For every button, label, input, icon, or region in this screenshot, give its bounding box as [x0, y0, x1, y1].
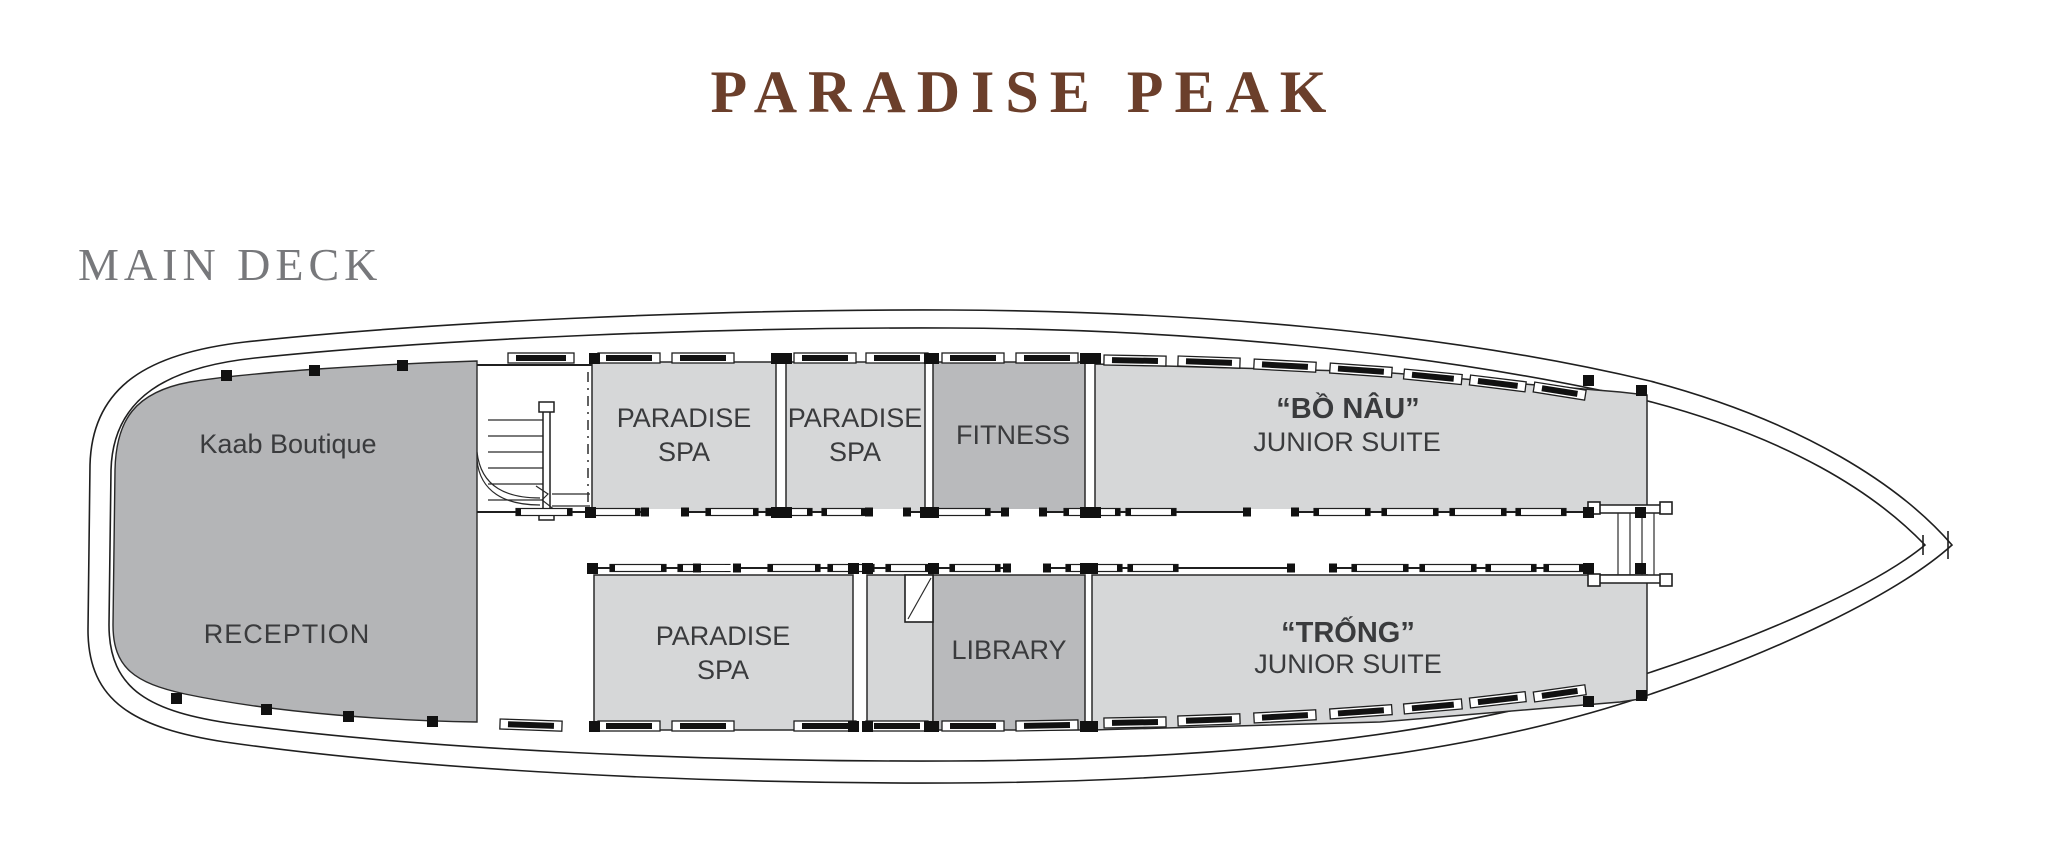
wall-junction-mark	[1583, 375, 1594, 386]
window-tick	[1471, 565, 1476, 572]
wall-junction-mark	[1583, 563, 1594, 574]
wall-junction-mark	[1583, 696, 1594, 707]
wall-junction-mark	[589, 721, 600, 732]
corridor-window-icon	[934, 509, 990, 516]
window-tick	[567, 509, 572, 516]
window-icon	[500, 719, 562, 731]
window-icon	[794, 353, 856, 363]
window-icon	[672, 353, 734, 363]
label-spa2-line2: SPA	[829, 437, 881, 467]
window-icon	[1016, 353, 1078, 363]
corridor-window-icon	[1516, 509, 1566, 516]
door-opening	[648, 509, 682, 515]
window-tick	[1403, 565, 1408, 572]
wall-junction-mark	[928, 507, 939, 518]
window-tick	[950, 565, 955, 572]
window-tick	[610, 565, 615, 572]
corridor-window-icon	[1126, 509, 1176, 516]
window-icon	[1178, 714, 1240, 726]
wall-junction-mark	[397, 360, 408, 371]
window-tick	[766, 509, 771, 516]
window-tick	[822, 509, 827, 516]
window-tick	[1561, 509, 1566, 516]
window-icon	[866, 353, 928, 363]
label-suite-trong-type: JUNIOR SUITE	[1254, 649, 1442, 679]
door-jamb	[903, 508, 911, 517]
door-jamb	[1043, 564, 1051, 573]
window-icon	[942, 353, 1004, 363]
wall-junction-mark	[1090, 507, 1101, 518]
door-jamb	[641, 508, 649, 517]
corridor-window-icon	[1128, 565, 1178, 572]
corridor-window-icon	[886, 565, 930, 572]
wall-junction-mark	[1635, 507, 1646, 518]
label-spa3-line2: SPA	[697, 655, 749, 685]
window-tick	[1433, 509, 1438, 516]
wall-junction-mark	[1636, 385, 1647, 396]
door-opening	[700, 565, 734, 571]
label-spa1-line2: SPA	[658, 437, 710, 467]
wall-junction-mark	[928, 353, 939, 364]
window-tick	[661, 565, 666, 572]
corridor-window-icon	[1314, 509, 1370, 516]
window-tick	[807, 509, 812, 516]
wall-junction-mark	[928, 721, 939, 732]
door-opening	[1294, 565, 1330, 571]
corridor-window-icon	[706, 509, 758, 516]
label-boutique: Kaab Boutique	[199, 429, 376, 459]
window-tick	[1531, 565, 1536, 572]
label-suite-bo-nau-name: “BỒ NÂU”	[1276, 391, 1419, 425]
corridor-window-icon	[1544, 565, 1584, 572]
door-jamb	[1291, 508, 1299, 517]
door-jamb	[681, 508, 689, 517]
stair-curved-wall-outer	[477, 452, 540, 498]
door-jamb	[733, 564, 741, 573]
wall-junction-mark	[171, 693, 182, 704]
wall-junction-mark	[343, 711, 354, 722]
door-opening	[872, 509, 904, 515]
window-tick	[985, 509, 990, 516]
wall-junction-mark	[1080, 353, 1091, 364]
window-icon	[598, 353, 660, 363]
wall-junction-mark	[587, 563, 598, 574]
wall-junction-mark	[1087, 721, 1098, 732]
window-tick	[706, 509, 711, 516]
wall-junction-mark	[1635, 563, 1646, 574]
window-icon	[866, 721, 928, 731]
window-tick	[1420, 565, 1425, 572]
label-fitness: FITNESS	[956, 420, 1070, 450]
window-tick	[1115, 509, 1120, 516]
window-tick	[1314, 509, 1319, 516]
label-suite-bo-nau-type: JUNIOR SUITE	[1253, 427, 1441, 457]
label-spa3-line1: PARADISE	[656, 621, 791, 651]
wall-junction-mark	[1583, 507, 1594, 518]
wall-junction-mark	[1080, 507, 1091, 518]
window-tick	[1544, 565, 1549, 572]
door-jamb	[1243, 508, 1251, 517]
window-tick	[1501, 509, 1506, 516]
wall-junction-mark	[862, 721, 873, 732]
window-tick	[768, 565, 773, 572]
corridor-window-icon	[1420, 565, 1476, 572]
window-tick	[1486, 565, 1491, 572]
label-spa2-line1: PARADISE	[788, 403, 923, 433]
label-suite-trong-name: “TRỐNG”	[1281, 615, 1415, 649]
wall-junction-mark	[928, 563, 939, 574]
window-tick	[1516, 509, 1521, 516]
stair-treads	[488, 420, 590, 506]
wall-junction-mark	[781, 353, 792, 364]
wall-junction-mark	[781, 507, 792, 518]
corridor-window-icon	[1382, 509, 1438, 516]
wall-junction-mark	[1090, 353, 1101, 364]
door-opening	[1010, 565, 1044, 571]
door-opening	[1250, 509, 1292, 515]
window-icon	[1016, 720, 1078, 731]
wall-junction-mark	[309, 365, 320, 376]
window-icon	[1178, 356, 1240, 368]
corridor-window-icon	[768, 565, 820, 572]
window-icon	[598, 721, 660, 731]
door-opening	[1008, 509, 1040, 515]
window-tick	[1171, 509, 1176, 516]
label-reception: RECEPTION	[204, 619, 371, 649]
corridor-window-icon	[516, 509, 572, 516]
window-tick	[635, 509, 640, 516]
window-tick	[828, 565, 833, 572]
door-jamb	[1039, 508, 1047, 517]
window-icon	[672, 721, 734, 731]
window-tick	[1117, 565, 1122, 572]
wall-junction-mark	[1087, 563, 1098, 574]
wall-junction-mark	[862, 563, 873, 574]
wall-junction-mark	[848, 563, 859, 574]
deck-plan-drawing: Kaab Boutique RECEPTION PARADISE SPA PAR…	[0, 0, 2048, 854]
window-tick	[886, 565, 891, 572]
corridor-window-icon	[1352, 565, 1408, 572]
window-tick	[1064, 509, 1069, 516]
window-tick	[1128, 565, 1133, 572]
room-boutique-reception	[113, 361, 477, 722]
library-door-vestibule	[905, 575, 933, 622]
corridor-window-icon	[1450, 509, 1506, 516]
wall-junction-mark	[771, 507, 782, 518]
wall-junction-mark	[585, 507, 596, 518]
window-tick	[1352, 565, 1357, 572]
window-tick	[1382, 509, 1387, 516]
door-jamb	[1003, 564, 1011, 573]
window-icon	[1104, 717, 1166, 728]
room-paradise-spa-3	[594, 575, 853, 730]
corridor-window-icon	[610, 565, 666, 572]
door-jamb	[1329, 564, 1337, 573]
wall-junction-mark	[1636, 690, 1647, 701]
wall-junction-mark	[261, 704, 272, 715]
wall-junction-mark	[589, 353, 600, 364]
window-tick	[1450, 509, 1455, 516]
window-tick	[678, 565, 683, 572]
corridor-window-icon	[822, 509, 866, 516]
wall-junction-mark	[771, 353, 782, 364]
window-tick	[1066, 565, 1071, 572]
door-jamb	[865, 508, 873, 517]
wall-junction-mark	[848, 721, 859, 732]
deck-plan-page: PARADISE PEAK MAIN DECK	[0, 0, 2048, 854]
door-jamb	[1287, 564, 1295, 573]
corridor-window-icon	[1486, 565, 1536, 572]
window-tick	[1365, 509, 1370, 516]
window-tick	[995, 565, 1000, 572]
window-tick	[516, 509, 521, 516]
window-icon	[942, 721, 1004, 731]
wall-junction-mark	[427, 716, 438, 727]
window-icon	[508, 353, 574, 363]
door-jamb	[693, 564, 701, 573]
wall-junction-mark	[221, 370, 232, 381]
window-tick	[1173, 565, 1178, 572]
label-spa1-line1: PARADISE	[617, 403, 752, 433]
bow-gangway-stairs	[1588, 502, 1672, 586]
window-icon	[1104, 355, 1166, 366]
window-tick	[815, 565, 820, 572]
window-tick	[1126, 509, 1131, 516]
corridor-window-icon	[950, 565, 1000, 572]
window-icon	[794, 721, 856, 731]
window-tick	[753, 509, 758, 516]
door-jamb	[1001, 508, 1009, 517]
stern-staircase	[477, 402, 590, 520]
label-library: LIBRARY	[951, 635, 1066, 665]
